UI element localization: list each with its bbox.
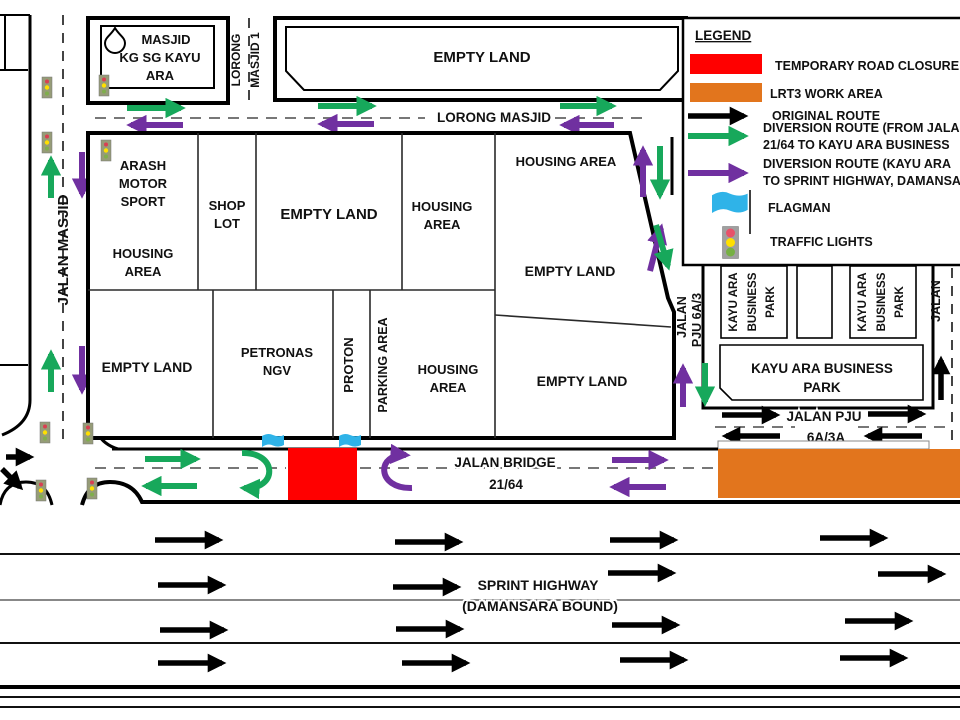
- traffic-light-icon: [40, 422, 50, 443]
- road-label: SPRINT HIGHWAY: [478, 577, 599, 593]
- traffic-light-icon: [722, 226, 739, 259]
- area-label: PETRONAS: [241, 345, 314, 360]
- area-label: LOT: [214, 216, 240, 231]
- road-label: JALAN: [675, 296, 689, 338]
- legend-label: DIVERSION ROUTE (FROM JALAN: [763, 121, 960, 135]
- masjid-label: KG SG KAYU: [119, 50, 200, 65]
- area-label: EMPTY LAND: [537, 373, 628, 389]
- road-label: MASJID 1: [248, 32, 262, 88]
- masjid-label: ARA: [146, 68, 175, 83]
- area-label: ARASH: [120, 158, 166, 173]
- masjid-label: MASJID: [141, 32, 190, 47]
- legend-label: TRAFFIC LIGHTS: [770, 235, 873, 249]
- road-sprint-highway: SPRINT HIGHWAY (DAMANSARA BOUND): [0, 482, 960, 707]
- area-label: HOUSING: [412, 199, 473, 214]
- green-lamp: [726, 248, 735, 257]
- area-label: SHOP: [209, 198, 246, 213]
- red-swatch: [690, 54, 762, 74]
- area-label: KAYU ARA BUSINESS: [751, 361, 893, 376]
- area-label: EMPTY LAND: [102, 359, 193, 375]
- area-label: AREA: [424, 217, 461, 232]
- road-lorong-masjid-1: LORONG MASJID 1: [229, 18, 262, 105]
- road-label: JALAN BRIDGE: [454, 455, 555, 470]
- area-label: BUSINESS: [747, 272, 759, 331]
- purple-uturn-arrow: [384, 455, 412, 488]
- area-label: SPORT: [121, 194, 166, 209]
- legend-label: FLAGMAN: [768, 201, 831, 215]
- traffic-light-icon: [42, 77, 52, 98]
- green-uturn-arrow: [242, 453, 269, 488]
- traffic-light-icon: [36, 480, 46, 501]
- area-label: KAYU ARA: [857, 272, 869, 331]
- area-label: HOUSING: [113, 246, 174, 261]
- legend: LEGEND TEMPORARY ROAD CLOSURE LRT3 WORK …: [683, 18, 960, 265]
- legend-label: 21/64 TO KAYU ARA BUSINESS: [763, 138, 950, 152]
- traffic-light-icon: [101, 140, 111, 161]
- area-label: PARK: [894, 285, 906, 317]
- yellow-lamp: [726, 238, 735, 247]
- area-label: EMPTY LAND: [433, 49, 530, 66]
- traffic-light-icon: [42, 132, 52, 153]
- area-label: BUSINESS: [876, 272, 888, 331]
- temporary-road-closure: [288, 448, 357, 500]
- kayu-ara-business-park: KAYU ARA BUSINESS PARK KAYU ARA BUSINESS…: [703, 263, 933, 408]
- legend-label: TEMPORARY ROAD CLOSURE: [775, 59, 959, 73]
- area-label: PARKING AREA: [376, 317, 390, 412]
- road-label: LORONG: [229, 34, 243, 87]
- area-label: PARK: [765, 285, 777, 317]
- road-jalan-pju-6a3a: JALAN PJU 6A/3A: [715, 409, 950, 445]
- area-label: NGV: [263, 363, 292, 378]
- legend-label: DIVERSION ROUTE (KAYU ARA: [763, 157, 951, 171]
- area-label: AREA: [430, 380, 467, 395]
- road-lorong-masjid: LORONG MASJID: [95, 106, 645, 125]
- work-area-barrier: [718, 441, 929, 449]
- road-corner: [2, 400, 30, 435]
- road-label: 21/64: [489, 477, 523, 492]
- orange-swatch: [690, 83, 762, 102]
- map-canvas: JALAN MASJID MASJID KG SG KAYU ARA LORON…: [0, 0, 960, 720]
- lrt3-work-area: [718, 449, 960, 498]
- road-label-jalan-masjid: JALAN MASJID: [55, 194, 72, 305]
- area-label: MOTOR: [119, 176, 168, 191]
- legend-label: LRT3 WORK AREA: [770, 87, 883, 101]
- road-label: LORONG MASJID: [437, 110, 551, 125]
- traffic-light-icon: [87, 478, 97, 499]
- main-land-block: ARASH MOTOR SPORT HOUSING AREA SHOP LOT …: [88, 133, 674, 438]
- area-label: HOUSING: [418, 362, 479, 377]
- empty-land-top-compound: EMPTY LAND: [275, 18, 686, 100]
- legend-label: TO SPRINT HIGHWAY, DAMANSA: [763, 174, 960, 188]
- red-lamp: [726, 229, 735, 238]
- business-park-lot: [797, 266, 832, 338]
- road-label: JALAN PJU: [786, 409, 861, 424]
- road-label: (DAMANSARA BOUND): [462, 598, 618, 614]
- road-jalan-bridge: JALAN BRIDGE 21/64: [95, 434, 718, 500]
- area-label: HOUSING AREA: [516, 154, 617, 169]
- area-label: PROTON: [341, 337, 356, 392]
- road-label: JALAN: [929, 280, 943, 322]
- area-label: EMPTY LAND: [525, 263, 616, 279]
- traffic-light-icon: [99, 75, 109, 96]
- legend-title: LEGEND: [695, 28, 752, 43]
- area-label: KAYU ARA: [728, 272, 740, 331]
- traffic-light-icon: [83, 423, 93, 444]
- area-label: EMPTY LAND: [280, 206, 377, 223]
- area-label: AREA: [125, 264, 162, 279]
- area-label: PARK: [803, 380, 841, 395]
- traffic-diversion-map: JALAN MASJID MASJID KG SG KAYU ARA LORON…: [0, 0, 960, 720]
